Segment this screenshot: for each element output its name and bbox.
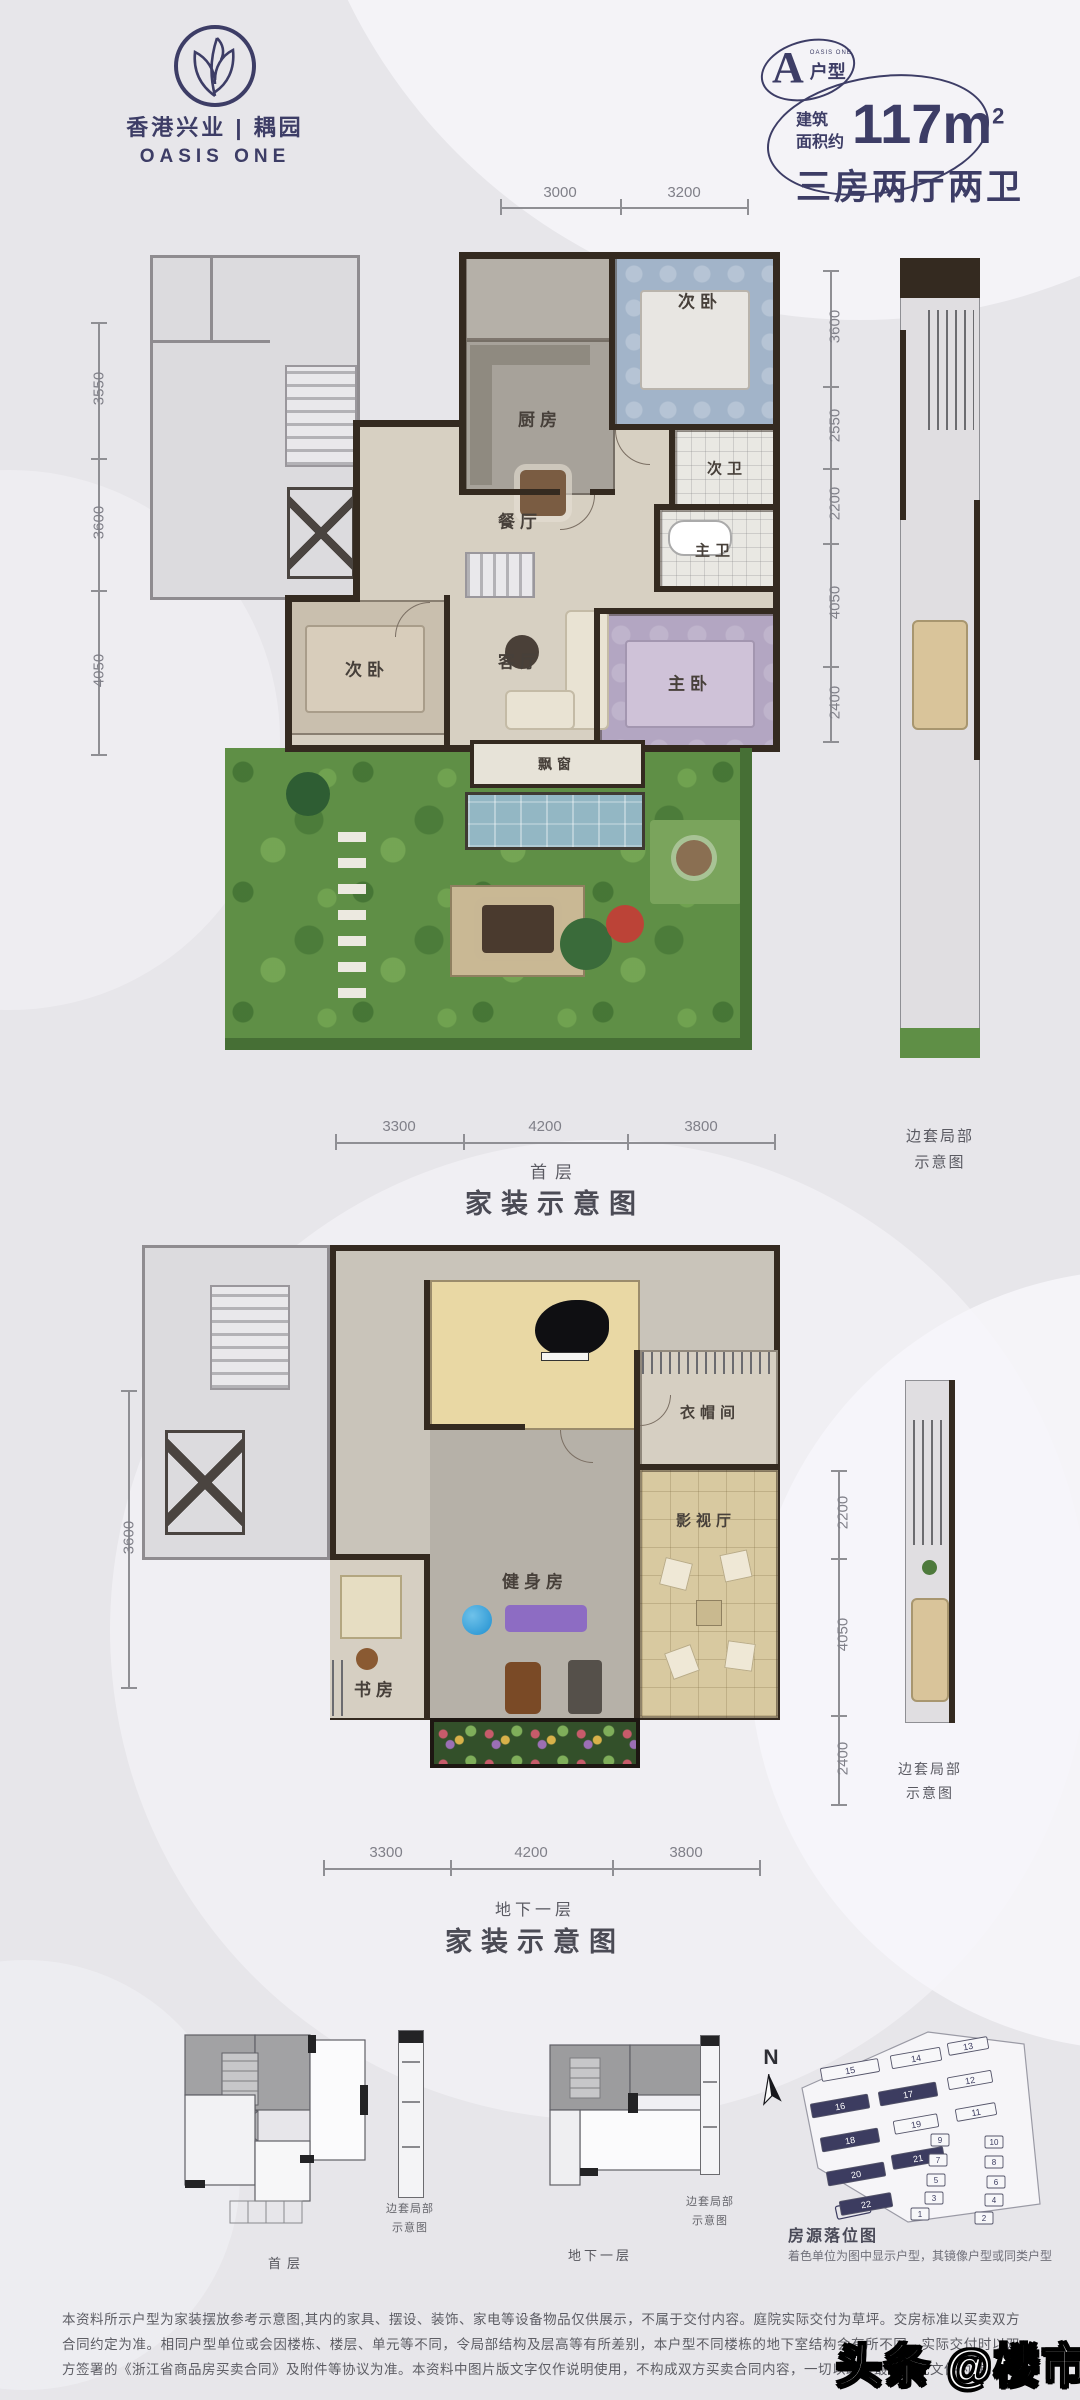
svg-text:15: 15 [844, 2065, 856, 2077]
sofa [505, 690, 575, 730]
room-label-master: 主卧 [668, 670, 712, 695]
plan1-floor-label: 首层 [455, 1158, 655, 1183]
room-label-living: 客厅 [498, 648, 542, 673]
gym-equipment [505, 1662, 541, 1714]
siteplan-building: 2 [975, 2212, 993, 2224]
svg-text:7: 7 [936, 2156, 941, 2165]
area-prefix-2: 面积约 [796, 132, 844, 154]
plan1-stairs [285, 365, 357, 467]
svg-text:1: 1 [918, 2210, 923, 2219]
piano-keys [541, 1352, 589, 1361]
svg-text:10: 10 [990, 2138, 999, 2147]
plan1-side-caption: 边套局部 示意图 [865, 1124, 1015, 1175]
gym-equipment [568, 1660, 602, 1714]
dim-right-2: 2550 [827, 381, 844, 471]
dim-left-3: 4050 [91, 626, 108, 716]
dim-right-5: 2400 [827, 658, 844, 748]
plan2-side-shelf [913, 1420, 945, 1545]
room-label-bedroom-top: 次卧 [678, 288, 722, 313]
side-strip-garden [900, 1028, 980, 1058]
plan2-closet-wardrobe [642, 1352, 776, 1374]
study-shelf [332, 1660, 346, 1716]
deck-dining-set [482, 905, 554, 953]
plan2-flower-bed [430, 1718, 640, 1768]
svg-text:2: 2 [982, 2214, 987, 2223]
plan1-water-feature [465, 792, 645, 850]
siteplan-building: 5 [927, 2174, 945, 2186]
study-desk [340, 1575, 402, 1639]
room-label-dining: 餐厅 [498, 508, 542, 533]
p2-dim-right-3: 2400 [835, 1714, 852, 1804]
garden-hedge [225, 1038, 752, 1050]
brand-name-cn: 香港兴业 | 耦园 [110, 110, 320, 142]
mini2-side-caption: 边套局部 示意图 [660, 2193, 760, 2230]
mini-plan-first-floor [170, 2025, 375, 2230]
area-sup: 2 [992, 103, 1004, 128]
dim-bottom-3: 3800 [656, 1118, 746, 1135]
plan2-side-plant [922, 1560, 937, 1575]
svg-text:6: 6 [994, 2178, 999, 2187]
plan2-media-room [640, 1470, 778, 1718]
plan1-terrace [465, 255, 615, 340]
svg-text:5: 5 [934, 2176, 939, 2185]
room-label-bath2: 次卫 [707, 458, 747, 479]
area-rooms: 三房两厅两卫 [796, 159, 1024, 210]
plan2-elevator [165, 1430, 245, 1535]
p2-dim-left-1: 3600 [121, 1493, 138, 1583]
dim-top-1: 3000 [515, 184, 605, 201]
plan2-side-caption: 边套局部 示意图 [855, 1758, 1005, 1806]
siteplan-svg: 15141316171218191120219107856342212 [788, 2018, 1050, 2228]
plan2-piano-room [430, 1280, 640, 1430]
siteplan-building: 7 [929, 2154, 947, 2166]
room-label-media: 影视厅 [676, 1510, 736, 1531]
side-strip-shelf [928, 310, 974, 430]
mini-strip-basement [700, 2035, 720, 2175]
compass-needle-icon [751, 2070, 792, 2111]
plan2-side-bed [911, 1598, 949, 1702]
study-chair [356, 1648, 378, 1670]
mini1-label: 首层 [207, 2253, 367, 2272]
room-label-closet: 衣帽间 [680, 1402, 740, 1423]
poster-page: 香港兴业 | 耦园 OASIS ONE A OASIS ONE 户型 建筑 面积… [0, 0, 1080, 2400]
svg-text:11: 11 [971, 2107, 982, 2118]
badge-en: OASIS ONE [810, 50, 852, 56]
svg-text:18: 18 [844, 2135, 856, 2147]
mini1-side-caption: 边套局部 示意图 [360, 2200, 460, 2237]
unit-badge: A OASIS ONE 户型 [772, 46, 852, 90]
area-value: 117m [852, 92, 992, 155]
svg-text:13: 13 [962, 2041, 974, 2053]
p2-dim-bottom-2: 4200 [486, 1844, 576, 1861]
brand-name-en: OASIS ONE [110, 146, 320, 168]
media-table [696, 1600, 722, 1626]
mini-strip-first-floor [398, 2030, 424, 2198]
dim-right-1: 3600 [827, 282, 844, 372]
plan2-floor-label: 地下一层 [435, 1896, 635, 1920]
grand-piano [535, 1300, 609, 1356]
area-block: 建筑 面积约 117m2 三房两厅两卫 [796, 96, 1024, 210]
tree-red [606, 905, 644, 943]
siteplan-building: 8 [985, 2156, 1003, 2168]
plan2-caption: 家装示意图 [385, 1920, 685, 1959]
siteplan-building: 10 [985, 2136, 1003, 2148]
gym-ball [462, 1605, 492, 1635]
svg-text:19: 19 [910, 2119, 922, 2131]
side-strip-bed [912, 620, 968, 730]
siteplan-building: 1 [911, 2208, 929, 2220]
plan2-core-stairs [210, 1285, 290, 1390]
siteplan-building: 3 [925, 2192, 943, 2204]
plan1-elevator [287, 487, 355, 579]
brand-logo: 香港兴业 | 耦园 OASIS ONE [110, 22, 320, 168]
svg-text:16: 16 [834, 2101, 846, 2113]
badge-type: 户型 [810, 58, 852, 84]
media-cushion [724, 1640, 756, 1672]
svg-text:17: 17 [902, 2089, 914, 2101]
plan1-inner-stairs [465, 552, 535, 598]
svg-text:8: 8 [992, 2158, 997, 2167]
area-prefix-1: 建筑 [796, 110, 844, 132]
dim-right-4: 4050 [827, 558, 844, 648]
plan1-caption: 家装示意图 [405, 1182, 705, 1221]
svg-text:3: 3 [932, 2194, 937, 2203]
stepping-stones [338, 828, 366, 998]
tree [286, 772, 330, 816]
media-cushion [719, 1549, 752, 1582]
svg-text:20: 20 [850, 2169, 862, 2181]
dim-right-3: 2200 [827, 459, 844, 549]
p2-dim-right-2: 4050 [835, 1590, 852, 1680]
room-label-master-bath: 主卫 [695, 540, 735, 561]
svg-text:4: 4 [992, 2196, 997, 2205]
siteplan-title: 房源落位图 [788, 2222, 878, 2246]
dim-left-2: 3600 [91, 478, 108, 568]
watermark: 头条 @楼市信息 [836, 2330, 1080, 2396]
room-label-kitchen: 厨房 [518, 406, 562, 431]
dim-top-2: 3200 [639, 184, 729, 201]
siteplan-building: 4 [985, 2194, 1003, 2206]
room-label-bay: 飘窗 [538, 754, 576, 774]
siteplan-note: 着色单位为图中显示户型，其镜像户型或同类户型 [788, 2247, 1052, 2264]
dim-bottom-2: 4200 [500, 1118, 590, 1135]
room-label-bedroom-left: 次卧 [345, 656, 389, 681]
siteplan-building: 6 [987, 2176, 1005, 2188]
p2-dim-right-1: 2200 [835, 1468, 852, 1558]
garden-hedge [740, 748, 752, 1050]
tree [560, 918, 612, 970]
room-label-gym: 健身房 [502, 1568, 568, 1593]
siteplan-building: 9 [931, 2134, 949, 2146]
svg-text:14: 14 [910, 2053, 922, 2065]
svg-text:22: 22 [860, 2199, 872, 2211]
svg-text:21: 21 [912, 2153, 924, 2165]
svg-text:9: 9 [938, 2136, 943, 2145]
mini2-label: 地下一层 [540, 2245, 660, 2264]
kitchen-counter [470, 345, 492, 485]
mini-plan-basement [540, 2030, 725, 2205]
dim-left-1: 3550 [91, 344, 108, 434]
p2-dim-bottom-1: 3300 [341, 1844, 431, 1861]
dim-bottom-1: 3300 [354, 1118, 444, 1135]
garden-round-table [676, 840, 712, 876]
yoga-mat [505, 1605, 587, 1632]
brand-emblem-icon [171, 22, 259, 110]
kitchen-counter [470, 345, 590, 365]
unit-letter: A [772, 46, 804, 90]
p2-dim-bottom-3: 3800 [641, 1844, 731, 1861]
svg-text:12: 12 [964, 2075, 976, 2087]
room-label-study: 书房 [354, 1676, 398, 1701]
